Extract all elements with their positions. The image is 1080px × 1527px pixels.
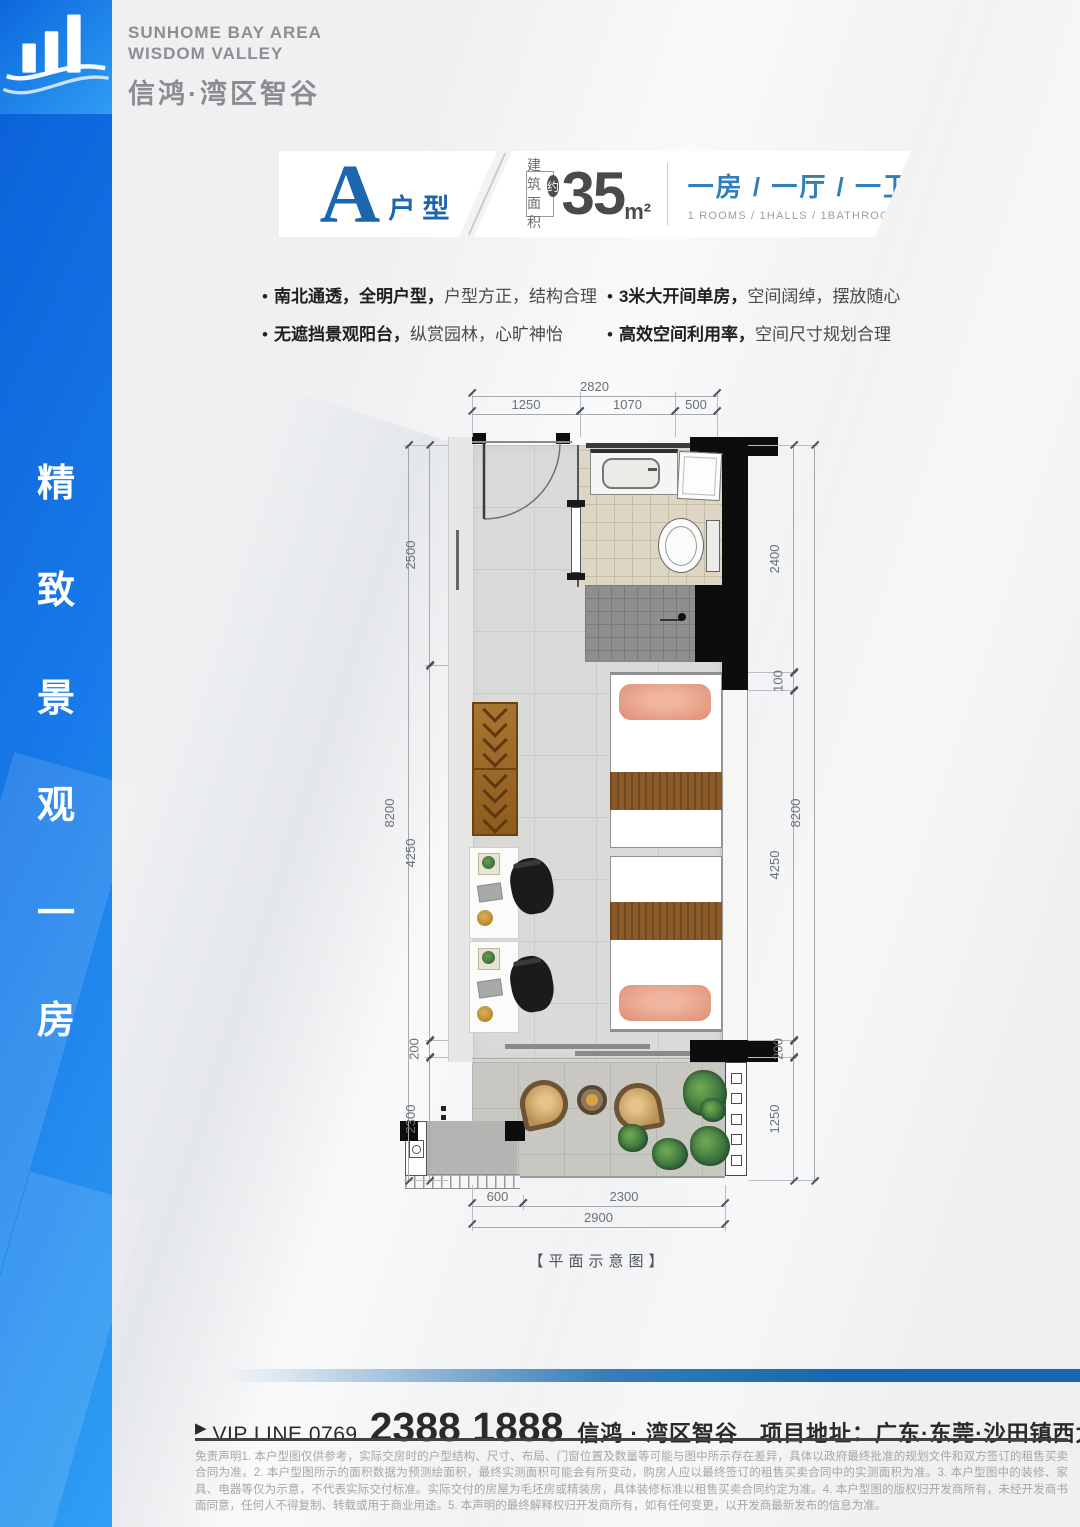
balcony-edge-line bbox=[520, 1176, 725, 1178]
dim-right-total: 8200 bbox=[814, 445, 815, 1180]
bullet-icon: • bbox=[262, 325, 268, 344]
black-wall-right-upper bbox=[722, 437, 748, 690]
toilet-tank-icon bbox=[706, 520, 720, 572]
feature-rest: 户型方正，结构合理 bbox=[444, 287, 597, 306]
plant-icon bbox=[700, 1098, 726, 1122]
dim-right-1: 2400 bbox=[793, 445, 794, 672]
slogan-char: 精 bbox=[37, 452, 75, 507]
footer-blue-divider bbox=[225, 1369, 1080, 1382]
brand-name: 信鸿 · 湾区智谷 bbox=[577, 1416, 738, 1448]
bullet-icon: • bbox=[607, 287, 613, 306]
address-value: 广东·东莞·沙田镇西太隆 bbox=[875, 1416, 1080, 1448]
wall-dot bbox=[441, 1106, 446, 1111]
wall-stub bbox=[505, 1121, 525, 1141]
vertical-slogan: 精 致 景 观 一 房 bbox=[0, 452, 112, 1044]
dim-left-2: 4250 bbox=[429, 665, 430, 1040]
layout-en: 1 ROOMS / 1HALLS / 1BATHROOMS bbox=[688, 210, 911, 222]
unit-info-panel: 建筑 面积 约 35 m² 一房 / 一厅 / 一卫 1 ROOMS / 1HA… bbox=[474, 151, 911, 237]
phone-number: 2388 1888 bbox=[370, 1404, 564, 1451]
footer-contact-row: ▶ VIP LINE 0769 2388 1888 信鸿 · 湾区智谷 项目地址… bbox=[195, 1404, 1070, 1451]
gold-plant-icon bbox=[477, 1006, 493, 1022]
black-wall-shower bbox=[695, 585, 722, 662]
utility-floor bbox=[425, 1121, 517, 1176]
pillow bbox=[619, 985, 711, 1021]
unit-type-label: 户型 bbox=[388, 187, 456, 226]
layout-cn: 一房 / 一厅 / 一卫 bbox=[688, 167, 911, 204]
pocket-door-cap bbox=[567, 500, 585, 507]
plant-icon bbox=[690, 1126, 730, 1166]
feature-item: •南北通透，全明户型，户型方正，结构合理 bbox=[262, 282, 607, 307]
plant-icon bbox=[482, 856, 495, 869]
area-unit: m² bbox=[624, 199, 651, 225]
unit-letter: A bbox=[320, 161, 381, 228]
area-value: 35 bbox=[561, 164, 624, 224]
layout-info: 一房 / 一厅 / 一卫 1 ROOMS / 1HALLS / 1BATHROO… bbox=[688, 167, 911, 222]
sink-basin-icon bbox=[602, 458, 660, 489]
logo-line-en2: WISDOM VALLEY bbox=[128, 43, 322, 64]
feature-rest: 空间尺寸规划合理 bbox=[755, 325, 891, 344]
slogan-char: 观 bbox=[37, 774, 75, 829]
address-label: 项目地址： bbox=[760, 1416, 875, 1448]
washer-icon bbox=[677, 451, 722, 501]
feature-item: •高效空间利用率，空间尺寸规划合理 bbox=[607, 320, 922, 345]
band-streak bbox=[0, 1172, 146, 1527]
area-label-line2: 面积 bbox=[527, 194, 553, 232]
slogan-char: 致 bbox=[37, 559, 75, 614]
floor-drain-icon bbox=[409, 1140, 424, 1158]
dim-top-3: 500 bbox=[675, 414, 717, 415]
logo-block bbox=[0, 0, 112, 114]
bullet-icon: • bbox=[607, 325, 613, 344]
plant-icon bbox=[652, 1138, 688, 1170]
slogan-char: 房 bbox=[37, 989, 75, 1044]
bed-runner bbox=[610, 902, 722, 940]
laptop-icon bbox=[477, 882, 503, 902]
entry-door-icon bbox=[472, 437, 572, 529]
bed bbox=[610, 672, 722, 848]
feature-bold: 无遮挡景观阳台， bbox=[274, 325, 410, 344]
balcony-table bbox=[577, 1085, 607, 1115]
bullet-icon: • bbox=[262, 287, 268, 306]
plan-caption: 【平面示意图】 bbox=[472, 1250, 725, 1271]
pocket-door-cap bbox=[567, 573, 585, 580]
right-window-wall bbox=[722, 690, 748, 1040]
sliding-door-leaf bbox=[505, 1044, 650, 1049]
unit-title-panel: A 户型 bbox=[279, 151, 497, 237]
pillow bbox=[619, 684, 711, 720]
dim-bottom-1: 600 bbox=[472, 1206, 523, 1207]
dim-bottom-total: 2900 bbox=[472, 1227, 725, 1228]
plant-icon bbox=[618, 1124, 648, 1152]
room-partition-line bbox=[585, 660, 695, 662]
black-wall-balcony bbox=[690, 1040, 778, 1062]
poster-page: 精 致 景 观 一 房 SUNHOME BAY AREA WISDOM VALL… bbox=[0, 0, 1080, 1527]
shower-door-pivot bbox=[678, 613, 686, 621]
balcony-railing bbox=[725, 1062, 747, 1176]
feature-bold: 3米大开间单房， bbox=[619, 287, 747, 306]
logo-line-cn: 信鸿·湾区智谷 bbox=[128, 72, 322, 111]
slogan-char: 景 bbox=[37, 667, 75, 722]
gold-plant-icon bbox=[477, 910, 493, 926]
feature-bold: 高效空间利用率， bbox=[619, 325, 755, 344]
vertical-divider bbox=[667, 163, 668, 225]
wardrobe bbox=[472, 702, 518, 836]
feature-rest: 纵赏园林，心旷神怡 bbox=[410, 325, 563, 344]
dim-top-total: 2820 bbox=[472, 396, 717, 397]
feature-rest: 空间阔绰，摆放随心 bbox=[747, 287, 900, 306]
disclaimer-text: 免责声明1. 本户型图仅供参考，实际交房时的户型结构、尺寸、布局、门窗位置及数量… bbox=[195, 1449, 1068, 1514]
feature-item: •无遮挡景观阳台，纵赏园林，心旷神怡 bbox=[262, 320, 607, 345]
slogan-char: 一 bbox=[37, 882, 75, 937]
bathroom-partition bbox=[577, 445, 579, 507]
feature-list: •南北通透，全明户型，户型方正，结构合理 •3米大开间单房，空间阔绰，摆放随心 … bbox=[262, 282, 922, 345]
shower-floor bbox=[585, 585, 695, 662]
vip-line-label: VIP LINE 0769 bbox=[213, 1423, 358, 1447]
sliding-door-track bbox=[472, 1058, 690, 1059]
logo-line-en1: SUNHOME BAY AREA bbox=[128, 22, 322, 43]
dim-right-5: 1250 bbox=[793, 1057, 794, 1180]
dim-left-1: 2500 bbox=[429, 445, 430, 665]
logo-text: SUNHOME BAY AREA WISDOM VALLEY 信鸿·湾区智谷 bbox=[128, 22, 322, 111]
left-window-glass bbox=[456, 530, 459, 590]
bathroom-top-wall bbox=[586, 443, 690, 448]
faucet-icon bbox=[648, 468, 657, 471]
bed-runner bbox=[610, 772, 722, 810]
dim-top-2: 1070 bbox=[580, 414, 675, 415]
footer-underline bbox=[195, 1438, 1068, 1441]
dim-bottom-2: 2300 bbox=[523, 1206, 725, 1207]
feature-item: •3米大开间单房，空间阔绰，摆放随心 bbox=[607, 282, 922, 307]
dim-left-4: 2300 bbox=[429, 1057, 430, 1180]
logo-icon bbox=[0, 0, 112, 114]
dim-top-1: 1250 bbox=[472, 414, 580, 415]
plant-icon bbox=[482, 951, 495, 964]
hatch-strip bbox=[405, 1174, 520, 1189]
dim-right-3: 4250 bbox=[793, 690, 794, 1040]
wall-dot bbox=[441, 1115, 446, 1120]
feature-bold: 南北通透，全明户型， bbox=[274, 287, 444, 306]
arrow-icon: ▶ bbox=[195, 1419, 207, 1437]
bed bbox=[610, 856, 722, 1032]
laptop-icon bbox=[477, 978, 503, 998]
approx-badge: 约 bbox=[547, 175, 560, 197]
sliding-door-leaf bbox=[575, 1051, 690, 1056]
toilet-icon bbox=[658, 518, 704, 573]
bathroom-pocket-door bbox=[571, 507, 581, 573]
